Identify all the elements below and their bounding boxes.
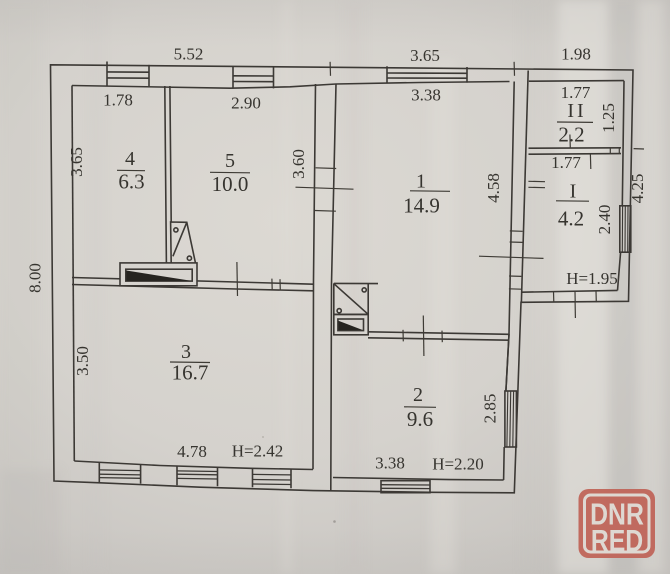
- svg-text:16.7: 16.7: [172, 361, 209, 385]
- svg-text:2: 2: [413, 384, 423, 406]
- svg-text:3.65: 3.65: [67, 147, 86, 177]
- svg-text:9.6: 9.6: [407, 407, 433, 431]
- svg-text:4.78: 4.78: [177, 442, 207, 461]
- svg-text:2.85: 2.85: [481, 394, 500, 424]
- svg-text:14.9: 14.9: [403, 194, 440, 218]
- svg-text:H=2.42: H=2.42: [232, 442, 284, 461]
- svg-text:2.2: 2.2: [558, 123, 584, 147]
- svg-text:1.77: 1.77: [551, 153, 581, 172]
- svg-text:3.50: 3.50: [73, 346, 92, 376]
- svg-text:8.00: 8.00: [26, 263, 45, 293]
- svg-text:RED: RED: [591, 523, 643, 557]
- svg-text:I: I: [570, 181, 577, 203]
- svg-text:1: 1: [416, 171, 426, 193]
- svg-text:5: 5: [225, 150, 235, 172]
- svg-text:6.3: 6.3: [118, 170, 144, 194]
- svg-text:5.52: 5.52: [174, 45, 204, 64]
- svg-text:1.78: 1.78: [103, 91, 133, 110]
- svg-text:4.25: 4.25: [628, 174, 647, 204]
- svg-text:4.2: 4.2: [558, 207, 584, 231]
- svg-text:1.98: 1.98: [561, 45, 591, 64]
- svg-text:3.65: 3.65: [410, 46, 440, 65]
- svg-text:3.60: 3.60: [289, 149, 308, 179]
- svg-text:H=2.20: H=2.20: [432, 455, 484, 474]
- svg-text:3.38: 3.38: [375, 454, 405, 473]
- svg-text:1.25: 1.25: [599, 103, 618, 133]
- svg-text:II: II: [567, 100, 586, 122]
- svg-text:4: 4: [125, 148, 135, 170]
- svg-text:H=1.95: H=1.95: [566, 269, 618, 288]
- svg-text:3.38: 3.38: [411, 86, 441, 105]
- svg-text:4.58: 4.58: [484, 173, 503, 203]
- svg-text:2.90: 2.90: [231, 94, 261, 113]
- svg-text:10.0: 10.0: [212, 172, 249, 196]
- svg-text:2.40: 2.40: [595, 205, 614, 235]
